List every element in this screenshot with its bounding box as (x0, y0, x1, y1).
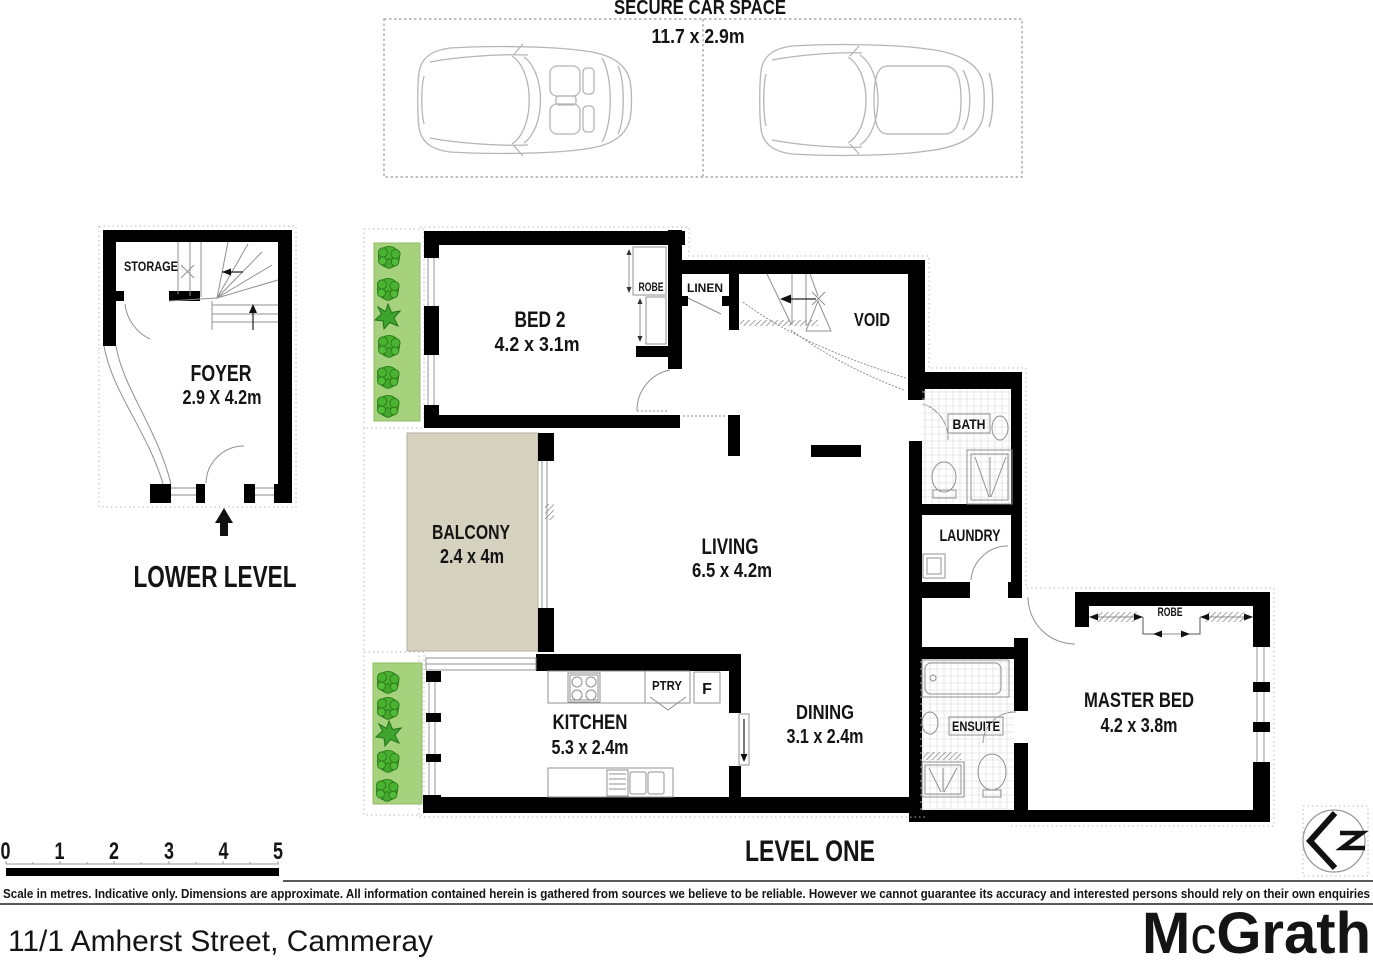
svg-text:LOWER LEVEL: LOWER LEVEL (134, 559, 297, 594)
svg-text:11/1 Amherst Street, Cammeray: 11/1 Amherst Street, Cammeray (8, 925, 433, 958)
svg-text:2: 2 (109, 838, 119, 865)
svg-text:4: 4 (219, 838, 229, 865)
svg-text:VOID: VOID (854, 309, 890, 330)
svg-text:2.9 X 4.2m: 2.9 X 4.2m (183, 386, 262, 409)
svg-text:BED 2: BED 2 (515, 307, 566, 332)
svg-text:3: 3 (164, 838, 174, 865)
svg-text:BATH: BATH (953, 416, 986, 432)
svg-text:5: 5 (273, 838, 283, 865)
svg-text:BALCONY: BALCONY (432, 522, 511, 544)
svg-text:SECURE CAR SPACE: SECURE CAR SPACE (614, 0, 786, 19)
svg-text:5.3 x 2.4m: 5.3 x 2.4m (552, 737, 629, 759)
svg-text:2.4 x 4m: 2.4 x 4m (440, 546, 504, 568)
svg-text:KITCHEN: KITCHEN (553, 711, 628, 734)
svg-text:6.5 x 4.2m: 6.5 x 4.2m (692, 559, 772, 582)
svg-text:Scale in metres. Indicative on: Scale in metres. Indicative only. Dimens… (3, 886, 1370, 901)
svg-text:FOYER: FOYER (191, 360, 252, 386)
svg-text:3.1 x 2.4m: 3.1 x 2.4m (787, 726, 864, 748)
svg-text:MASTER BED: MASTER BED (1084, 689, 1194, 712)
svg-text:ENSUITE: ENSUITE (952, 718, 1000, 734)
svg-text:LEVEL ONE: LEVEL ONE (745, 835, 875, 868)
svg-text:STORAGE: STORAGE (124, 258, 178, 274)
svg-text:LIVING: LIVING (702, 534, 759, 559)
svg-text:4.2 x 3.8m: 4.2 x 3.8m (1101, 715, 1178, 737)
svg-text:F: F (702, 681, 712, 698)
svg-text:LAUNDRY: LAUNDRY (940, 526, 1001, 545)
svg-text:ROBE: ROBE (1158, 605, 1183, 619)
svg-text:DINING: DINING (796, 701, 854, 724)
svg-text:1: 1 (55, 838, 65, 865)
svg-text:4.2 x 3.1m: 4.2 x 3.1m (495, 333, 580, 356)
svg-text:11.7 x 2.9m: 11.7 x 2.9m (652, 26, 745, 48)
svg-text:LINEN: LINEN (687, 283, 723, 295)
svg-text:ROBE: ROBE (639, 280, 664, 294)
svg-text:0: 0 (1, 838, 11, 865)
svg-text:PTRY: PTRY (652, 678, 682, 693)
svg-text:McGrath: McGrath (1142, 901, 1371, 960)
